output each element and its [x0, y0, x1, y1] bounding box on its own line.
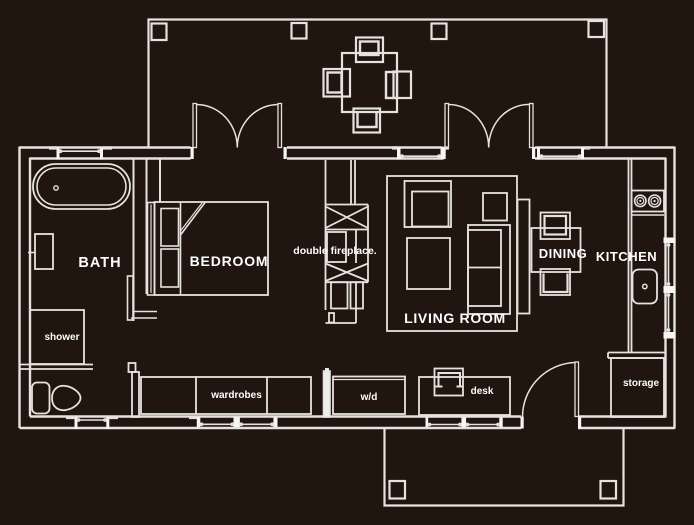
svg-text:KITCHEN: KITCHEN [596, 249, 657, 264]
svg-text:BEDROOM: BEDROOM [190, 253, 269, 269]
svg-text:double fireplace.: double fireplace. [293, 245, 377, 257]
svg-text:shower: shower [44, 332, 79, 343]
svg-text:LIVING ROOM: LIVING ROOM [404, 310, 506, 326]
svg-text:desk: desk [471, 386, 494, 397]
svg-text:DINING: DINING [539, 246, 588, 261]
svg-text:storage: storage [623, 378, 660, 389]
svg-text:wardrobes: wardrobes [210, 390, 262, 401]
svg-text:BATH: BATH [78, 255, 121, 271]
svg-text:w/d: w/d [360, 392, 378, 403]
